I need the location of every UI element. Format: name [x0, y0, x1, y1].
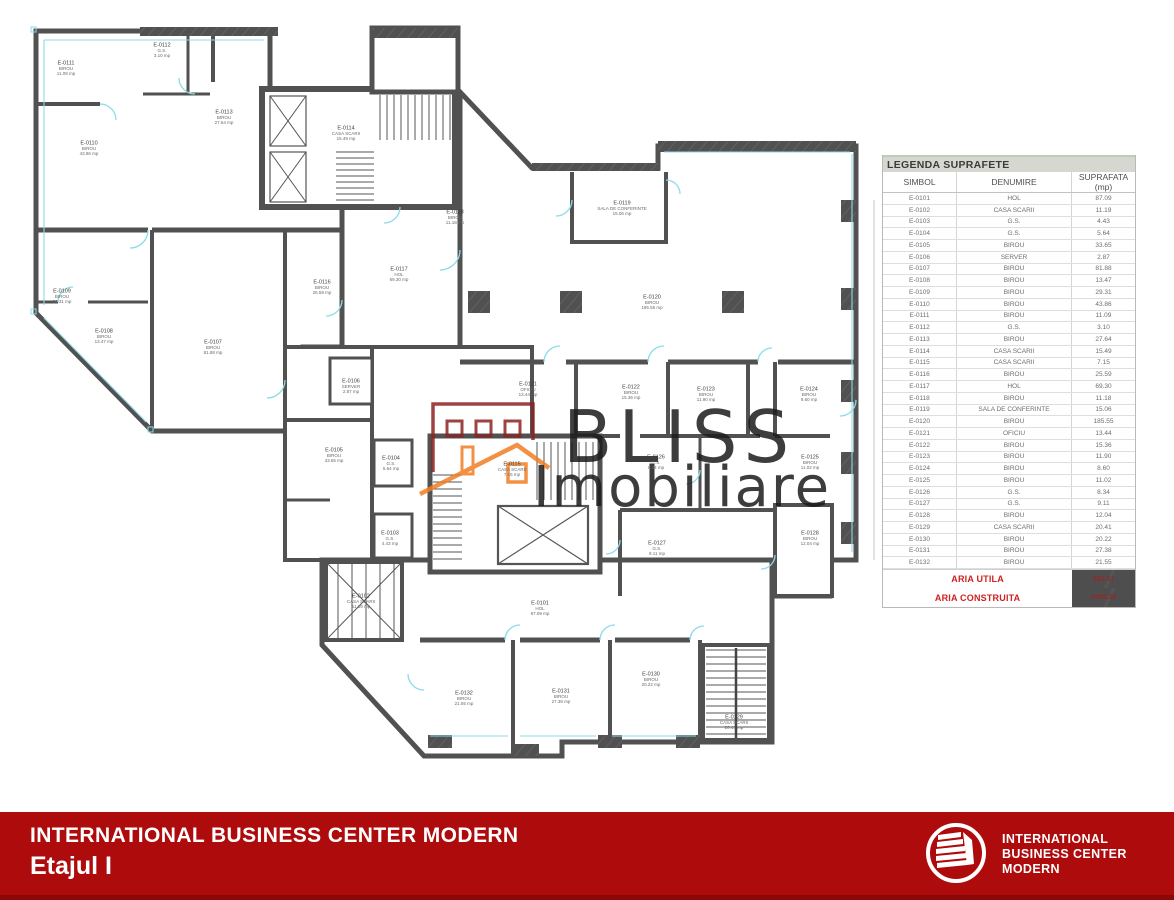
- legend-row: E-0112G.S.3.10: [883, 322, 1135, 334]
- walls: [36, 28, 856, 756]
- legend-cell: 13.44: [1072, 430, 1135, 437]
- legend-cell: E-0132: [883, 559, 956, 566]
- legend-cell: 4.43: [1072, 218, 1135, 225]
- legend-cell: E-0118: [883, 395, 956, 402]
- legend-cell: E-0120: [883, 418, 956, 425]
- legend-cell: SALA DE CONFERINTE: [956, 405, 1072, 416]
- legend-cell: BIROU: [956, 311, 1072, 322]
- legend-cell: E-0110: [883, 301, 956, 308]
- aria-construita-value: 1005.36: [1072, 588, 1135, 607]
- legend-cell: BIROU: [956, 546, 1072, 557]
- legend-cell: BIROU: [956, 463, 1072, 474]
- legend-row: E-0126G.S.8.34: [883, 487, 1135, 499]
- legend-cell: 43.86: [1072, 301, 1135, 308]
- legend-rows: E-0101HOL87.09E-0102CASA SCARII11.19E-01…: [883, 193, 1135, 569]
- legend-cell: BIROU: [956, 299, 1072, 310]
- legend-cell: BIROU: [956, 240, 1072, 251]
- legend-row: E-0120BIROU185.55: [883, 416, 1135, 428]
- legend-cell: E-0121: [883, 430, 956, 437]
- legend-cell: 15.36: [1072, 442, 1135, 449]
- banner-title: INTERNATIONAL BUSINESS CENTER MODERN: [30, 824, 518, 848]
- legend-row: E-0117HOL69.30: [883, 381, 1135, 393]
- legend-cell: 27.64: [1072, 336, 1135, 343]
- legend-cell: G.S.: [956, 322, 1072, 333]
- legend-cell: E-0102: [883, 207, 956, 214]
- legend-col-denumire: DENUMIRE: [956, 172, 1072, 192]
- legend-row: E-0108BIROU13.47: [883, 275, 1135, 287]
- legend-cell: E-0113: [883, 336, 956, 343]
- legend-header-row: SIMBOL DENUMIRE SUPRAFATA (mp): [883, 172, 1135, 193]
- legend-row: E-0130BIROU20.22: [883, 534, 1135, 546]
- aria-construita-row: ARIA CONSTRUITA 1005.36: [883, 588, 1135, 607]
- legend-cell: 69.30: [1072, 383, 1135, 390]
- legend-cell: BIROU: [956, 440, 1072, 451]
- legend-cell: BIROU: [956, 264, 1072, 275]
- legend-cell: E-0124: [883, 465, 956, 472]
- aria-utila-row: ARIA UTILA 863.91: [883, 569, 1135, 588]
- page: BLISS Imobiliare E-0101HOL87.09 mpE-0102…: [0, 0, 1174, 900]
- footer-banner: INTERNATIONAL BUSINESS CENTER MODERN Eta…: [0, 812, 1174, 900]
- legend-cell: E-0107: [883, 265, 956, 272]
- aria-utila-value: 863.91: [1072, 570, 1135, 588]
- legend-cell: G.S.: [956, 499, 1072, 510]
- legend-cell: CASA SCARII: [956, 346, 1072, 357]
- legend-cell: BIROU: [956, 287, 1072, 298]
- legend-cell: E-0125: [883, 477, 956, 484]
- legend-cell: 2.87: [1072, 254, 1135, 261]
- legend-row: E-0132BIROU21.55: [883, 557, 1135, 569]
- legend-cell: E-0129: [883, 524, 956, 531]
- legend-cell: 185.55: [1072, 418, 1135, 425]
- legend-cell: BIROU: [956, 534, 1072, 545]
- legend-row: E-0121OFICIU13.44: [883, 428, 1135, 440]
- brand-text-line: BUSINESS CENTER: [1002, 847, 1127, 862]
- legend-row: E-0110BIROU43.86: [883, 299, 1135, 311]
- legend-panel: LEGENDA SUPRAFETE SIMBOL DENUMIRE SUPRAF…: [882, 155, 1136, 608]
- legend-cell: E-0123: [883, 453, 956, 460]
- legend-row: E-0113BIROU27.64: [883, 334, 1135, 346]
- legend-row: E-0115CASA SCARII7.15: [883, 358, 1135, 370]
- legend-cell: BIROU: [956, 369, 1072, 380]
- legend-cell: BIROU: [956, 475, 1072, 486]
- legend-cell: E-0104: [883, 230, 956, 237]
- legend-cell: E-0111: [883, 312, 956, 319]
- legend-cell: OFICIU: [956, 428, 1072, 439]
- legend-cell: CASA SCARII: [956, 358, 1072, 369]
- legend-cell: 8.34: [1072, 489, 1135, 496]
- legend-title: LEGENDA SUPRAFETE: [883, 155, 1135, 172]
- legend-cell: 81.88: [1072, 265, 1135, 272]
- legend-cell: G.S.: [956, 228, 1072, 239]
- legend-cell: HOL: [956, 193, 1072, 204]
- legend-cell: E-0130: [883, 536, 956, 543]
- legend-cell: BIROU: [956, 393, 1072, 404]
- building-circle-icon: [922, 818, 992, 888]
- legend-cell: E-0108: [883, 277, 956, 284]
- legend-col-suprafata: SUPRAFATA (mp): [1072, 172, 1135, 192]
- legend-cell: BIROU: [956, 275, 1072, 286]
- legend-cell: 87.09: [1072, 195, 1135, 202]
- legend-cell: E-0116: [883, 371, 956, 378]
- legend-row: E-0102CASA SCARII11.19: [883, 205, 1135, 217]
- legend-cell: SERVER: [956, 252, 1072, 263]
- legend-cell: E-0101: [883, 195, 956, 202]
- legend-cell: G.S.: [956, 487, 1072, 498]
- legend-row: E-0125BIROU11.02: [883, 475, 1135, 487]
- legend-cell: E-0115: [883, 359, 956, 366]
- legend-cell: 20.22: [1072, 536, 1135, 543]
- legend-cell: E-0128: [883, 512, 956, 519]
- legend-row: E-0106SERVER2.87: [883, 252, 1135, 264]
- legend-cell: E-0122: [883, 442, 956, 449]
- legend-cell: BIROU: [956, 416, 1072, 427]
- banner-subtitle: Etajul I: [30, 852, 112, 881]
- brand-text-line: INTERNATIONAL: [1002, 832, 1127, 847]
- watermark-text-line2: Imobiliare: [533, 455, 831, 520]
- legend-cell: E-0131: [883, 547, 956, 554]
- legend-cell: BIROU: [956, 557, 1072, 568]
- legend-row: E-0119SALA DE CONFERINTE15.06: [883, 405, 1135, 417]
- legend-row: E-0109BIROU29.31: [883, 287, 1135, 299]
- legend-cell: BIROU: [956, 452, 1072, 463]
- legend-cell: 33.65: [1072, 242, 1135, 249]
- legend-row: E-0111BIROU11.09: [883, 311, 1135, 323]
- legend-cell: 9.11: [1072, 500, 1135, 507]
- legend-cell: 11.02: [1072, 477, 1135, 484]
- brand-logo-block: INTERNATIONALBUSINESS CENTERMODERN: [922, 818, 1172, 894]
- legend-cell: 20.41: [1072, 524, 1135, 531]
- legend-row: E-0116BIROU25.59: [883, 369, 1135, 381]
- legend-cell: 11.90: [1072, 453, 1135, 460]
- legend-cell: 21.55: [1072, 559, 1135, 566]
- legend-cell: E-0112: [883, 324, 956, 331]
- legend-cell: HOL: [956, 381, 1072, 392]
- legend-cell: E-0103: [883, 218, 956, 225]
- legend-cell: G.S.: [956, 217, 1072, 228]
- legend-cell: E-0114: [883, 348, 956, 355]
- legend-row: E-0127G.S.9.11: [883, 499, 1135, 511]
- legend-cell: 15.49: [1072, 348, 1135, 355]
- aria-construita-label: ARIA CONSTRUITA: [883, 588, 1072, 607]
- legend-row: E-0131BIROU27.38: [883, 546, 1135, 558]
- legend-row: E-0104G.S.5.64: [883, 228, 1135, 240]
- legend-cell: 3.10: [1072, 324, 1135, 331]
- legend-row: E-0107BIROU81.88: [883, 264, 1135, 276]
- legend-cell: E-0119: [883, 406, 956, 413]
- legend-row: E-0105BIROU33.65: [883, 240, 1135, 252]
- legend-row: E-0101HOL87.09: [883, 193, 1135, 205]
- legend-cell: E-0126: [883, 489, 956, 496]
- legend-cell: CASA SCARII: [956, 522, 1072, 533]
- legend-row: E-0103G.S.4.43: [883, 217, 1135, 229]
- legend-cell: E-0106: [883, 254, 956, 261]
- legend-row: E-0124BIROU8.60: [883, 463, 1135, 475]
- legend-cell: 27.38: [1072, 547, 1135, 554]
- legend-cell: 29.31: [1072, 289, 1135, 296]
- legend-row: E-0123BIROU11.90: [883, 452, 1135, 464]
- legend-cell: CASA SCARII: [956, 205, 1072, 216]
- brand-text-line: MODERN: [1002, 862, 1127, 877]
- legend-cell: 11.19: [1072, 207, 1135, 214]
- legend-cell: BIROU: [956, 334, 1072, 345]
- brand-text: INTERNATIONALBUSINESS CENTERMODERN: [1002, 832, 1127, 877]
- legend-row: E-0122BIROU15.36: [883, 440, 1135, 452]
- legend-cell: 8.60: [1072, 465, 1135, 472]
- legend-cell: E-0117: [883, 383, 956, 390]
- legend-row: E-0129CASA SCARII20.41: [883, 522, 1135, 534]
- legend-row: E-0118BIROU11.18: [883, 393, 1135, 405]
- legend-row: E-0114CASA SCARII15.49: [883, 346, 1135, 358]
- legend-row: E-0128BIROU12.04: [883, 510, 1135, 522]
- legend-cell: E-0127: [883, 500, 956, 507]
- legend-cell: E-0109: [883, 289, 956, 296]
- legend-cell: BIROU: [956, 510, 1072, 521]
- legend-cell: 11.18: [1072, 395, 1135, 402]
- legend-cell: E-0105: [883, 242, 956, 249]
- legend-cell: 5.64: [1072, 230, 1135, 237]
- legend-col-simbol: SIMBOL: [883, 177, 956, 187]
- legend-cell: 13.47: [1072, 277, 1135, 284]
- legend-cell: 15.06: [1072, 406, 1135, 413]
- legend-cell: 25.59: [1072, 371, 1135, 378]
- legend-cell: 12.04: [1072, 512, 1135, 519]
- aria-utila-label: ARIA UTILA: [883, 570, 1072, 588]
- legend-cell: 7.15: [1072, 359, 1135, 366]
- legend-cell: 11.09: [1072, 312, 1135, 319]
